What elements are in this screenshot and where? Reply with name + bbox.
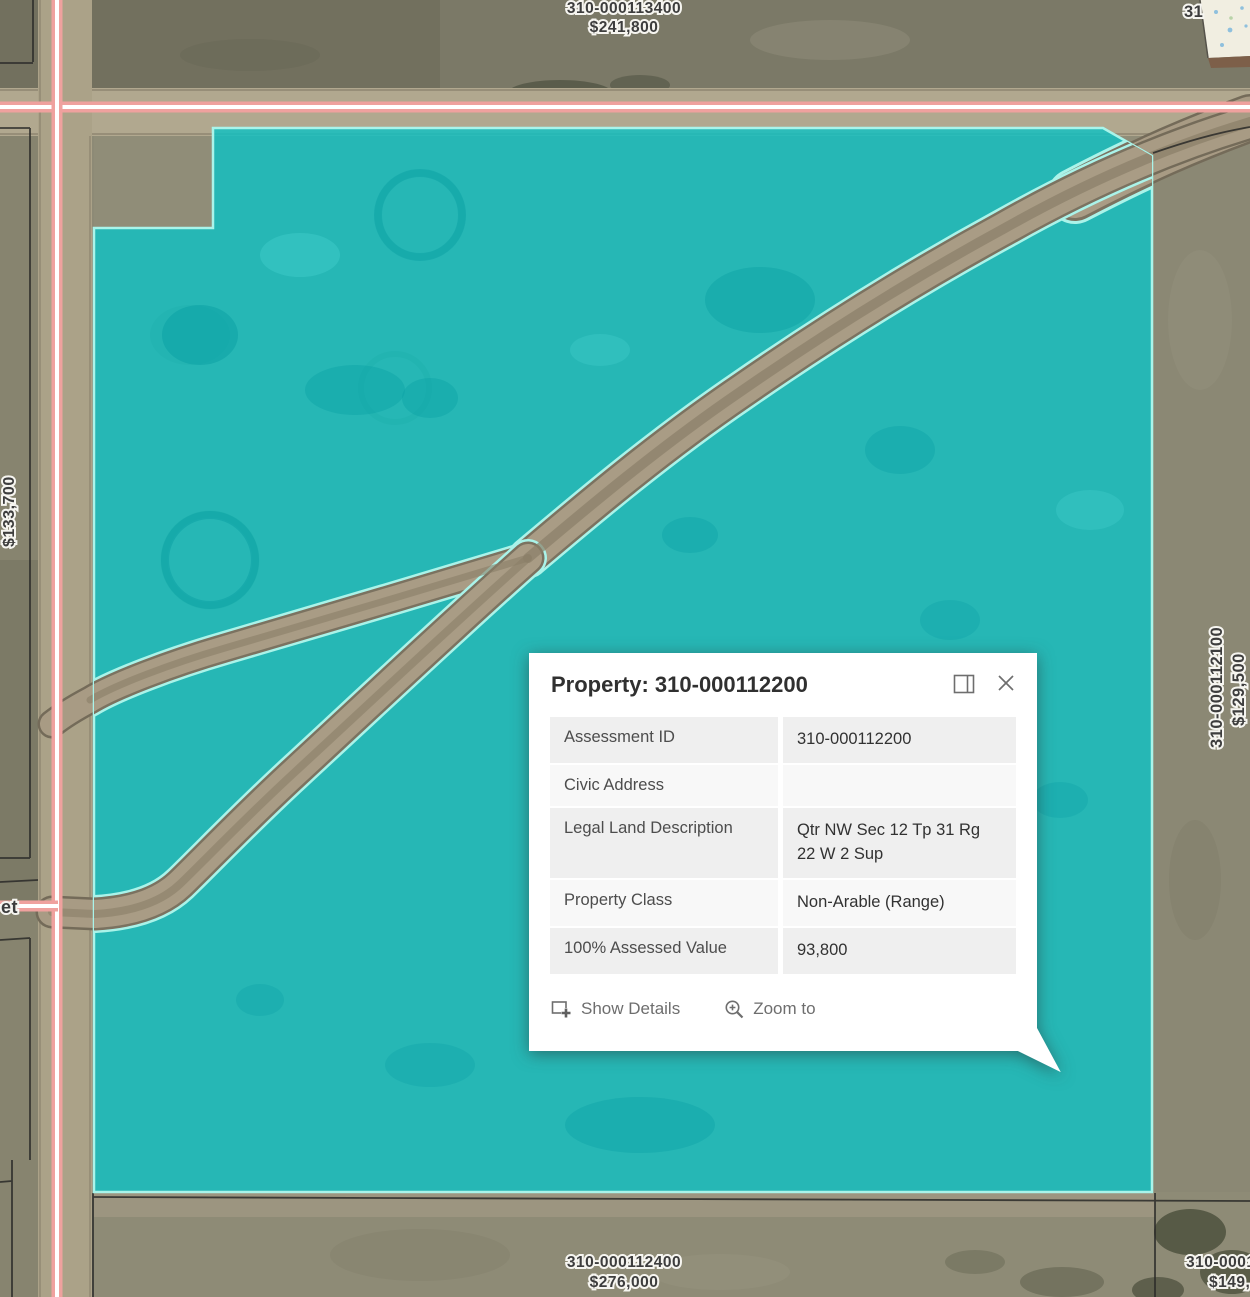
- row-label: Property Class: [550, 880, 778, 926]
- row-value: 93,800: [783, 928, 1016, 974]
- parcel-label-south-id: 310-000112400: [567, 1254, 681, 1271]
- parcel-label-north-value: $241,800: [590, 19, 659, 36]
- zoom-to-button[interactable]: Zoom to: [724, 999, 815, 1020]
- row-value: Non-Arable (Range): [783, 880, 1016, 926]
- parcel-label-southeast-value: $149,: [1209, 1274, 1250, 1291]
- imagery-edge-inset: [1200, 0, 1250, 68]
- row-label: Civic Address: [550, 765, 778, 806]
- zoom-to-label: Zoom to: [753, 999, 815, 1019]
- table-row: Property Class Non-Arable (Range): [550, 880, 1016, 926]
- aerial-map[interactable]: 310-000113400 $241,800 310-000112400 $27…: [0, 0, 1250, 1297]
- popup-actions: Show Details Zoom to: [551, 998, 816, 1020]
- close-icon[interactable]: [993, 670, 1019, 696]
- parcel-label-northeast-fragment: 31: [1184, 3, 1203, 21]
- map-canvas[interactable]: 310-000113400 $241,800 310-000112400 $27…: [0, 0, 1250, 1297]
- parcel-label-north-id: 310-000113400: [567, 0, 681, 17]
- parcel-label-east-value: $129,500: [1230, 653, 1248, 726]
- street-name-fragment: et: [1, 897, 18, 917]
- property-popup: Property: 310-000112200 Assessment ID 31…: [529, 653, 1037, 1051]
- row-value: Qtr NW Sec 12 Tp 31 Rg 22 W 2 Sup: [783, 808, 1016, 878]
- row-value: 310-000112200: [783, 717, 1016, 763]
- show-details-label: Show Details: [581, 999, 680, 1019]
- row-value: [783, 765, 1016, 806]
- row-label: 100% Assessed Value: [550, 928, 778, 974]
- table-row: Assessment ID 310-000112200: [550, 717, 1016, 763]
- parcel-label-west-value: $133,700: [1, 476, 18, 547]
- table-row: Civic Address: [550, 765, 1016, 806]
- show-details-button[interactable]: Show Details: [551, 998, 680, 1020]
- row-label: Assessment ID: [550, 717, 778, 763]
- parcel-label-southeast-id: 310-0001: [1186, 1254, 1250, 1271]
- dock-icon[interactable]: [951, 671, 977, 697]
- row-label: Legal Land Description: [550, 808, 778, 878]
- show-details-icon: [551, 998, 573, 1020]
- parcel-label-south-value: $276,000: [590, 1274, 659, 1291]
- parcel-label-east-id: 310-000112100: [1208, 627, 1226, 748]
- popup-title: Property: 310-000112200: [551, 672, 808, 698]
- zoom-to-icon: [724, 999, 745, 1020]
- table-row: Legal Land Description Qtr NW Sec 12 Tp …: [550, 808, 1016, 878]
- attribute-table: Assessment ID 310-000112200 Civic Addres…: [550, 717, 1016, 976]
- table-row: 100% Assessed Value 93,800: [550, 928, 1016, 974]
